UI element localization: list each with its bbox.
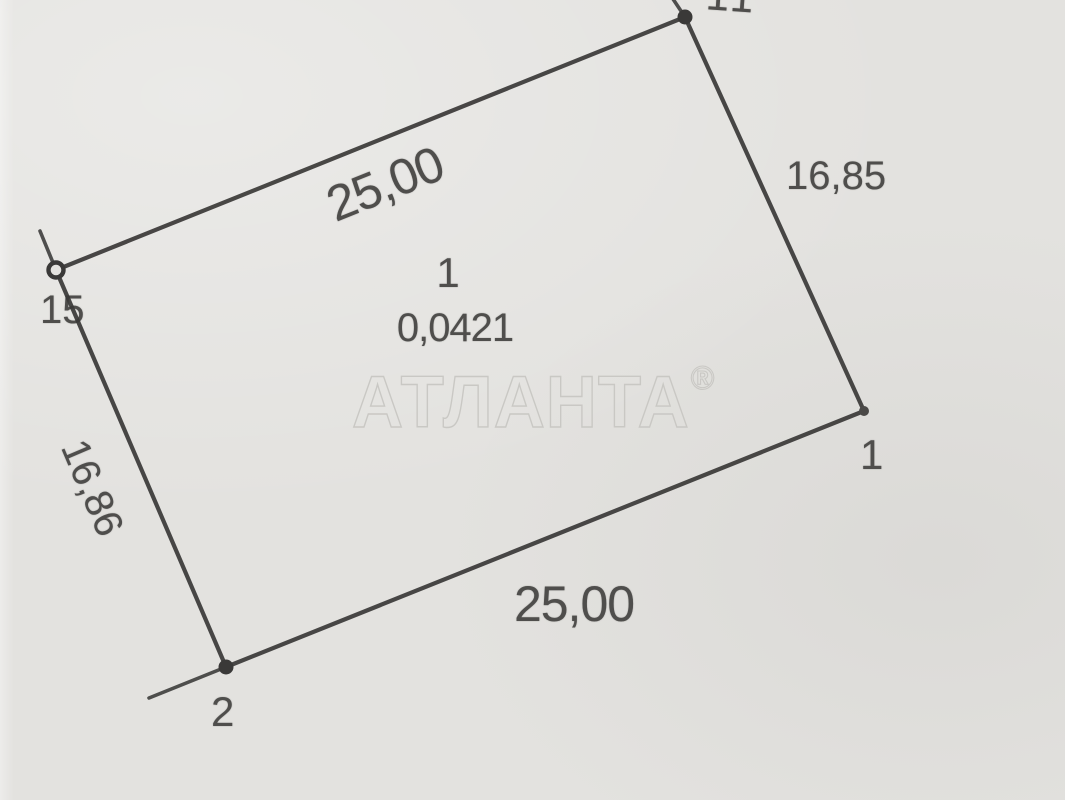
boundary-edge xyxy=(56,270,226,667)
boundary-edge xyxy=(685,17,864,411)
boundary-edge xyxy=(226,411,864,667)
parcel-outline-svg xyxy=(0,0,1065,800)
scanned-cadastral-plan: АТЛАНТА® 25,00 16,85 25,00 16,86 1 0,042… xyxy=(0,0,1065,800)
boundary-edge xyxy=(56,17,685,270)
vertex-marker-open-circle xyxy=(49,263,64,278)
vertex-marker-filled-dot xyxy=(678,10,693,25)
vertex-marker-filled-dot xyxy=(219,660,234,675)
vertex-marker-small-dot xyxy=(859,406,869,416)
boundary-tail xyxy=(149,667,226,698)
